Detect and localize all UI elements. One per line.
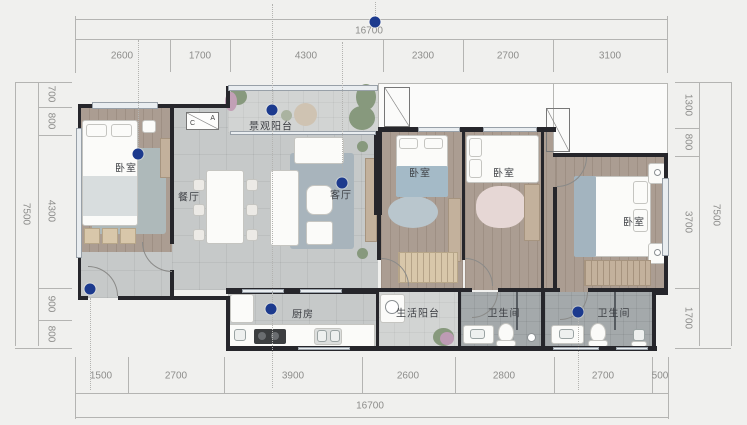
dimension-label: 2600 [111, 51, 133, 62]
window [76, 128, 82, 258]
chair [193, 204, 205, 216]
dimension-tick [75, 357, 76, 419]
sofa [294, 137, 344, 164]
wardrobe [584, 260, 651, 286]
dimension-label: 1700 [189, 51, 211, 62]
dimension-tick [675, 288, 699, 289]
rug [476, 186, 526, 228]
dimension-label: 800 [683, 134, 694, 151]
dimension-label: 700 [46, 86, 57, 103]
leader-line [342, 42, 343, 178]
chair [246, 229, 258, 241]
plant [349, 106, 375, 130]
chair [246, 179, 258, 191]
sink-bowl [559, 329, 574, 339]
dimension-label: 800 [46, 113, 57, 130]
floor-plan [0, 0, 747, 425]
dimension-tick [38, 288, 72, 289]
room-label-living-room: 客厅 [330, 187, 352, 202]
dimension-label: 2700 [592, 371, 614, 382]
dimension-label: 7500 [711, 204, 722, 226]
sink-bowl [330, 330, 340, 342]
storage-box [84, 228, 100, 244]
dimension-tick [15, 348, 72, 349]
dimension-tick [463, 39, 464, 72]
coffee-table [306, 185, 333, 215]
wall [543, 288, 560, 292]
sink-bowl [470, 329, 485, 339]
dimension-tick [38, 135, 72, 136]
wall [374, 131, 382, 215]
dimension-label: 1300 [683, 94, 694, 116]
room-label-bedroom-3: 卧室 [493, 165, 515, 180]
wall [118, 296, 172, 300]
dimension-line [75, 39, 667, 40]
blanket [83, 176, 137, 216]
balcony-railing [228, 85, 378, 91]
plant [357, 141, 368, 152]
leader-line [138, 40, 139, 150]
leader-line [272, 116, 273, 388]
window [300, 289, 342, 293]
wall [78, 296, 88, 300]
dimension-label: 16700 [355, 26, 383, 37]
dimension-tick [383, 39, 384, 72]
dimension-label: 2300 [412, 51, 434, 62]
dimension-line [731, 82, 732, 346]
window [483, 127, 537, 132]
jar [294, 103, 317, 126]
plant [357, 248, 368, 259]
fridge [230, 294, 254, 323]
room-label-dining-room: 餐厅 [178, 189, 200, 204]
wall [170, 296, 230, 300]
window [553, 347, 599, 350]
dimension-tick [675, 82, 731, 83]
pillow [111, 124, 132, 137]
wall [541, 292, 545, 348]
floor-plan-canvas: C A 167002600170043002300270031001500270… [0, 0, 747, 425]
room-label-bedroom-2: 卧室 [409, 165, 431, 180]
window [616, 347, 648, 350]
wall [652, 292, 656, 351]
dimension-label: 500 [652, 371, 669, 382]
flowers [440, 332, 454, 345]
dining-table [206, 170, 244, 244]
dimension-label: 2700 [497, 51, 519, 62]
wall [170, 270, 174, 298]
dimension-tick [75, 16, 76, 73]
wall [170, 104, 174, 244]
lamp [654, 249, 661, 256]
dimension-label: 900 [46, 296, 57, 313]
lamp [654, 169, 661, 176]
chair [193, 229, 205, 241]
pillow [469, 138, 482, 157]
dimension-tick [128, 357, 129, 393]
dimension-label: 2600 [397, 371, 419, 382]
wall [588, 288, 668, 292]
dimension-tick [675, 348, 731, 349]
room-label-master-bedroom: 卧室 [623, 214, 645, 229]
marker-view-balcony[interactable] [267, 105, 278, 116]
rug [388, 196, 438, 228]
marker-bedroom-1[interactable] [133, 149, 144, 160]
dimension-tick [170, 39, 171, 72]
room-label-bathroom-1: 卫生间 [488, 305, 521, 320]
window [242, 289, 284, 293]
room-label-service-balcony: 生活阳台 [396, 305, 440, 320]
ac-platform-area [553, 83, 668, 155]
pedestal-sink [633, 329, 645, 341]
dimension-tick [667, 16, 668, 73]
dimension-tick [675, 156, 699, 157]
dimension-tick [15, 82, 72, 83]
wall [553, 187, 557, 290]
small-sink [234, 329, 246, 341]
dimension-tick [668, 357, 669, 419]
dimension-tick [675, 128, 699, 129]
storage-box [120, 228, 136, 244]
marker-living-room[interactable] [337, 178, 348, 189]
wall [541, 131, 544, 288]
dimension-line [75, 417, 668, 418]
dimension-tick [230, 39, 231, 72]
room-label-kitchen: 厨房 [292, 306, 314, 321]
wall [498, 288, 543, 292]
dimension-label: 4300 [295, 51, 317, 62]
dimension-label: 2800 [493, 371, 515, 382]
wall [377, 215, 381, 260]
window [92, 102, 158, 109]
wall [376, 292, 379, 348]
dimension-line [699, 82, 700, 346]
dimension-tick [38, 320, 72, 321]
room-label-view-balcony: 景观阳台 [249, 118, 293, 133]
dimension-label: 7500 [21, 203, 32, 225]
burner [258, 332, 266, 340]
pillow [399, 138, 418, 149]
dimension-label: 1700 [683, 307, 694, 329]
dresser [524, 184, 540, 241]
dimension-label: 2700 [165, 371, 187, 382]
dimension-label: 800 [46, 326, 57, 343]
pillow [86, 124, 107, 137]
dimension-label: 4300 [46, 200, 57, 222]
ac-unit [384, 87, 410, 127]
dimension-line [38, 82, 39, 346]
leader-line [272, 4, 273, 104]
dimension-label: 3700 [683, 211, 694, 233]
wall [226, 296, 230, 348]
leader-line [375, 2, 376, 17]
nightstand [142, 120, 156, 133]
sink-bowl [317, 330, 327, 342]
throw [574, 176, 596, 257]
dimension-tick [38, 107, 72, 108]
kitchen-counter [228, 324, 375, 347]
pillow [424, 138, 443, 149]
armchair [306, 221, 333, 245]
chair [246, 204, 258, 216]
dimension-tick [455, 357, 456, 393]
window [662, 178, 669, 256]
section-marker: C A [186, 112, 219, 130]
marker-top[interactable] [370, 17, 381, 28]
wall [458, 292, 461, 348]
pillow [469, 159, 482, 178]
section-marker-letter: C [190, 120, 195, 127]
dimension-label: 16700 [356, 401, 384, 412]
sofa [270, 170, 299, 246]
dimension-tick [224, 357, 225, 393]
pillow [633, 181, 648, 204]
storage-box [102, 228, 118, 244]
wall [462, 131, 465, 260]
leader-line [578, 318, 579, 390]
marker-bathroom[interactable] [573, 307, 584, 318]
room-label-bedroom-1: 卧室 [115, 160, 137, 175]
marker-entry[interactable] [85, 284, 96, 295]
section-marker-letter: A [210, 115, 215, 122]
floor-drain [527, 333, 536, 342]
dimension-tick [362, 357, 363, 393]
dimension-label: 3900 [282, 371, 304, 382]
dimension-line [15, 82, 16, 346]
room-label-bathroom-2: 卫生间 [598, 305, 631, 320]
window [418, 127, 460, 132]
dimension-label: 3100 [599, 51, 621, 62]
dimension-label: 1500 [90, 371, 112, 382]
marker-kitchen[interactable] [266, 304, 277, 315]
dimension-tick [553, 39, 554, 72]
dimension-line [75, 393, 668, 394]
window [298, 347, 350, 350]
dimension-tick [554, 357, 555, 393]
